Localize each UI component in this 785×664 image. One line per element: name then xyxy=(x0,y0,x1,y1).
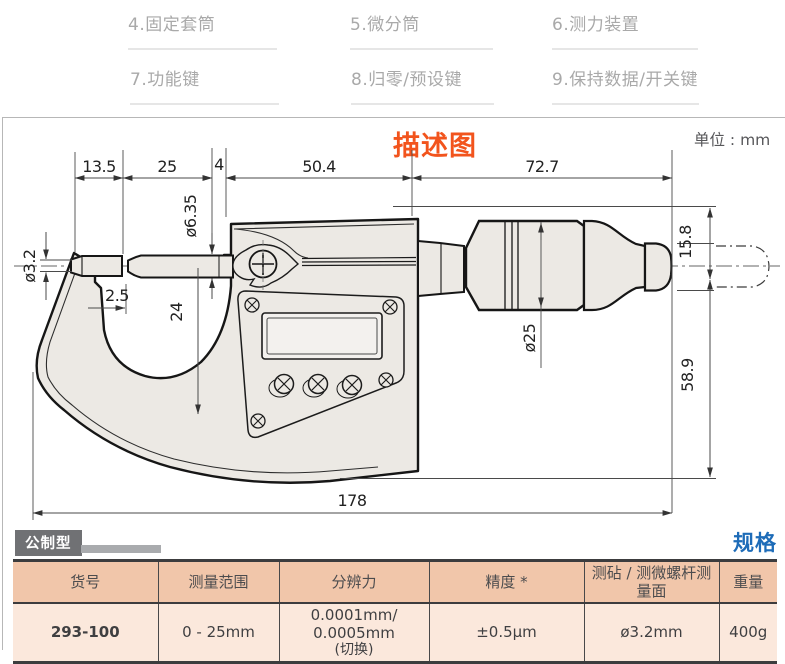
dim-50.4: 50.4 xyxy=(302,157,336,176)
dim-25: 25 xyxy=(157,157,176,176)
col-header-accuracy: 精度 * xyxy=(429,561,584,604)
sleeve-thimble-assembly xyxy=(418,221,672,310)
lcd-display xyxy=(262,313,382,359)
dim-72.7: 72.7 xyxy=(525,157,559,176)
cell-face: ø3.2mm xyxy=(584,603,719,662)
screw-icon xyxy=(251,414,265,428)
dim-dia25: ø25 xyxy=(520,324,539,353)
dim-58.9: 58.9 xyxy=(678,358,697,392)
cell-resolution: 0.0001mm/ 0.0005mm (切换) xyxy=(279,603,429,662)
spec-table-header-row: 货号 测量范围 分辨力 精度 * 测砧 / 测微螺杆测量面 重量 xyxy=(13,561,777,604)
cell-weight: 400g xyxy=(719,603,777,662)
screw-icon xyxy=(379,373,393,387)
col-header-resolution: 分辨力 xyxy=(279,561,429,604)
anvil xyxy=(71,256,122,276)
ratchet-stop xyxy=(645,244,672,291)
dim-13.5: 13.5 xyxy=(82,157,116,176)
cell-accuracy: ±0.5μm xyxy=(429,603,584,662)
cell-range: 0 - 25mm xyxy=(158,603,279,662)
dim-4: 4 xyxy=(214,155,224,174)
dim-24: 24 xyxy=(167,302,186,322)
dim-2.5: 2.5 xyxy=(105,286,129,305)
spec-table: 货号 测量范围 分辨力 精度 * 测砧 / 测微螺杆测量面 重量 293-100… xyxy=(13,559,777,664)
screw-icon xyxy=(383,300,397,314)
col-header-range: 测量范围 xyxy=(158,561,279,604)
metric-badge-bar xyxy=(81,545,161,553)
thimble-cylinder xyxy=(466,221,584,310)
thimble-taper xyxy=(584,221,645,310)
col-header-code: 货号 xyxy=(13,561,158,604)
spindle xyxy=(128,256,233,278)
dim-dia6.35: ø6.35 xyxy=(181,195,200,238)
dim-15.8: 15.8 xyxy=(676,225,695,259)
dim-dia3.2: ø3.2 xyxy=(20,249,39,282)
screw-icon xyxy=(245,298,259,312)
spec-section-title: 规格 xyxy=(733,527,777,557)
resolution-line1: 0.0001mm/ 0.0005mm xyxy=(284,606,425,642)
dim-178: 178 xyxy=(337,491,366,510)
metric-type-badge: 公制型 xyxy=(15,530,82,556)
spec-table-data-row: 293-100 0 - 25mm 0.0001mm/ 0.0005mm (切换)… xyxy=(13,603,777,662)
cell-code: 293-100 xyxy=(13,603,158,662)
col-header-face: 测砧 / 测微螺杆测量面 xyxy=(584,561,719,604)
resolution-line2: (切换) xyxy=(284,642,425,659)
col-header-weight: 重量 xyxy=(719,561,777,604)
